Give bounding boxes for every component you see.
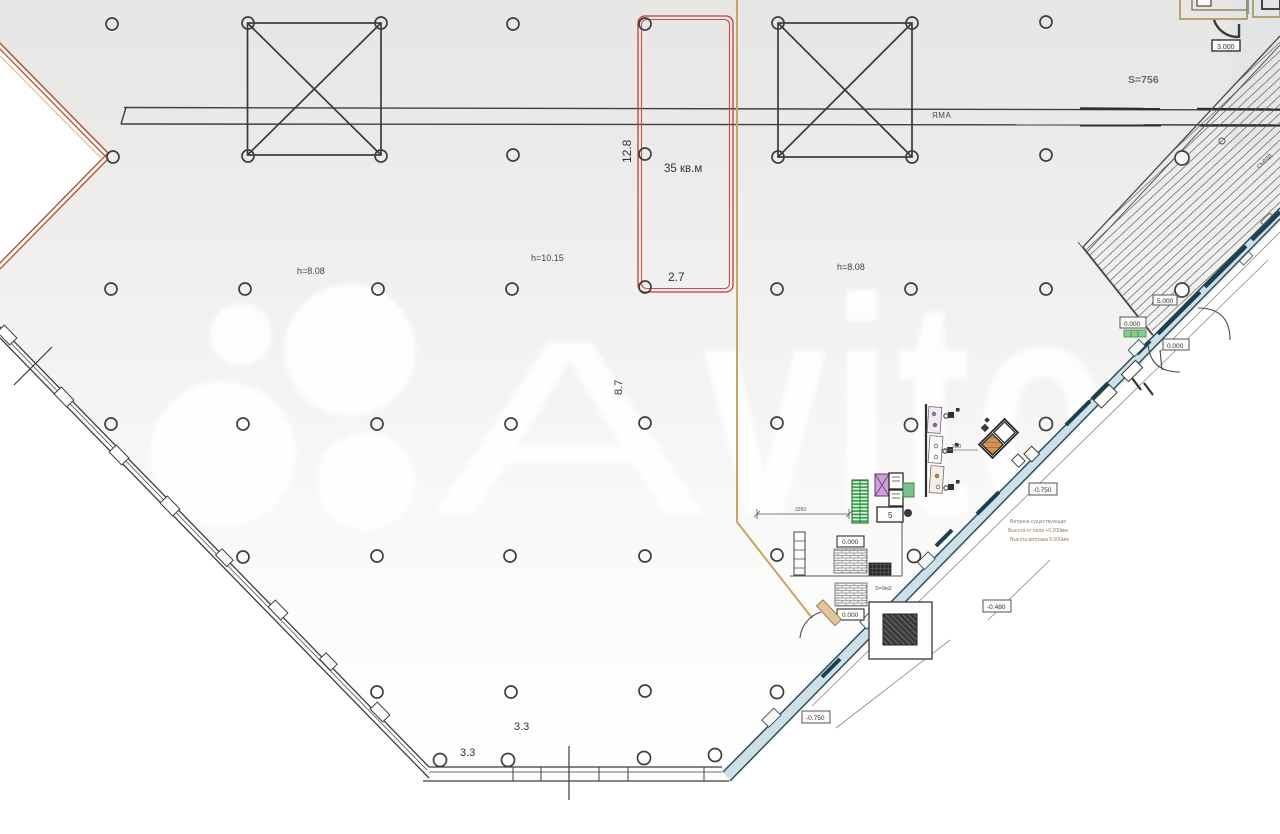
- svg-text:8.7: 8.7: [613, 380, 625, 395]
- svg-text:ЯМА: ЯМА: [932, 111, 951, 120]
- svg-text:S=756: S=756: [1128, 74, 1159, 86]
- svg-text:h=10.15: h=10.15: [531, 253, 564, 263]
- svg-text:2.7: 2.7: [668, 270, 685, 284]
- svg-text:-0.750: -0.750: [1033, 487, 1052, 494]
- svg-text:5: 5: [888, 511, 893, 520]
- svg-text:Витрина существующая: Витрина существующая: [1010, 519, 1066, 525]
- svg-text:3.3: 3.3: [514, 721, 529, 733]
- svg-text:S=9м2: S=9м2: [875, 586, 892, 592]
- svg-text:0.000: 0.000: [1167, 343, 1184, 350]
- svg-text:-0.750: -0.750: [806, 715, 825, 722]
- svg-text:280: 280: [952, 444, 961, 450]
- svg-text:3.3: 3.3: [460, 747, 475, 759]
- svg-text:Высота витража 5.000мм: Высота витража 5.000мм: [1010, 537, 1069, 543]
- svg-text:5.000: 5.000: [1157, 298, 1174, 305]
- svg-text:A: A: [434, 288, 706, 567]
- svg-text:0.000: 0.000: [1124, 321, 1141, 328]
- svg-text:0.000: 0.000: [842, 539, 859, 546]
- svg-text:3.000: 3.000: [1217, 44, 1235, 51]
- svg-text:h=8.08: h=8.08: [297, 266, 325, 276]
- svg-text:0.000: 0.000: [842, 612, 859, 619]
- svg-text:Высота от пола +0.200мм: Высота от пола +0.200мм: [1008, 528, 1068, 534]
- svg-text:12.8: 12.8: [620, 139, 634, 163]
- svg-text:35 кв.м: 35 кв.м: [664, 163, 702, 175]
- svg-text:3260: 3260: [795, 507, 806, 513]
- svg-text:h=8.08: h=8.08: [837, 262, 865, 272]
- svg-text:-0.480: -0.480: [987, 604, 1006, 611]
